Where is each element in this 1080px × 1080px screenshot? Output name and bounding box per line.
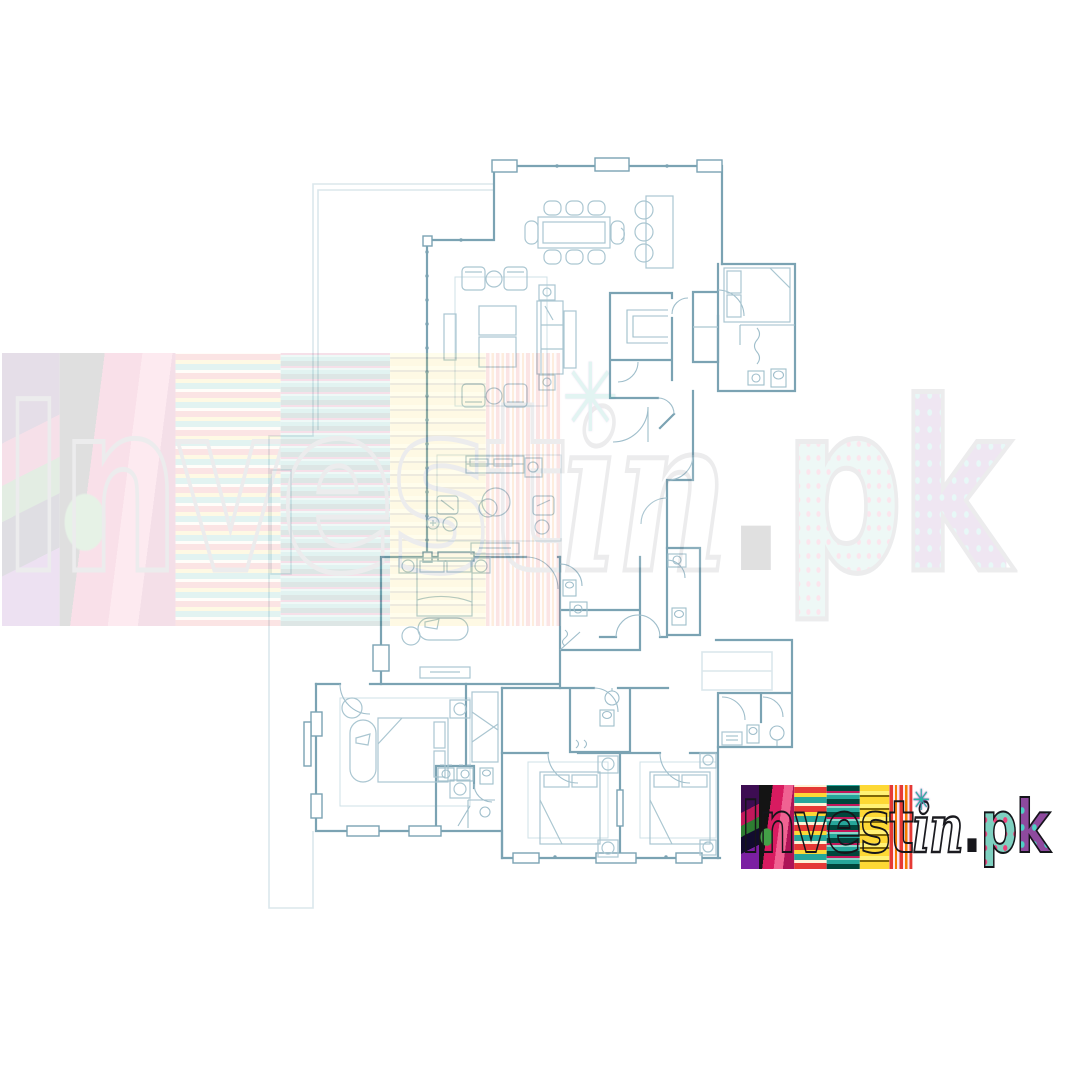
watermark-letter: n xyxy=(60,353,175,626)
watermark-script-in: ✳in xyxy=(562,386,724,602)
star-dot-icon: ✳ xyxy=(562,352,614,447)
watermark-letter: s xyxy=(390,353,486,626)
star-dot-icon: ✳ xyxy=(912,786,928,815)
investin-pk-logo: Invest✳in.pk xyxy=(741,791,1049,863)
logo-letter: v xyxy=(794,785,826,869)
logo-letter: e xyxy=(826,785,860,869)
watermark-letter: t xyxy=(486,353,562,626)
logo-letter: p xyxy=(980,785,1016,869)
watermark-letter: k xyxy=(899,353,1006,626)
logo-letter: . xyxy=(962,785,980,869)
logo-letter: t xyxy=(889,785,912,869)
logo-script-in: ✳in xyxy=(912,796,962,862)
watermark-letter: e xyxy=(280,353,390,626)
logo-letter: n xyxy=(759,785,794,869)
watermark-letter: I xyxy=(2,353,60,626)
watermark-wordmark: Invest✳in.pk xyxy=(2,372,1006,607)
logo-letter: k xyxy=(1016,785,1049,869)
logo-letter: s xyxy=(860,785,889,869)
watermark-letter: . xyxy=(724,353,783,626)
watermark-letter: v xyxy=(175,353,280,626)
watermark-letter: p xyxy=(783,353,899,626)
page: Invest✳in.pk Invest✳in.pk xyxy=(0,0,1080,1080)
logo-letter: I xyxy=(741,785,759,869)
